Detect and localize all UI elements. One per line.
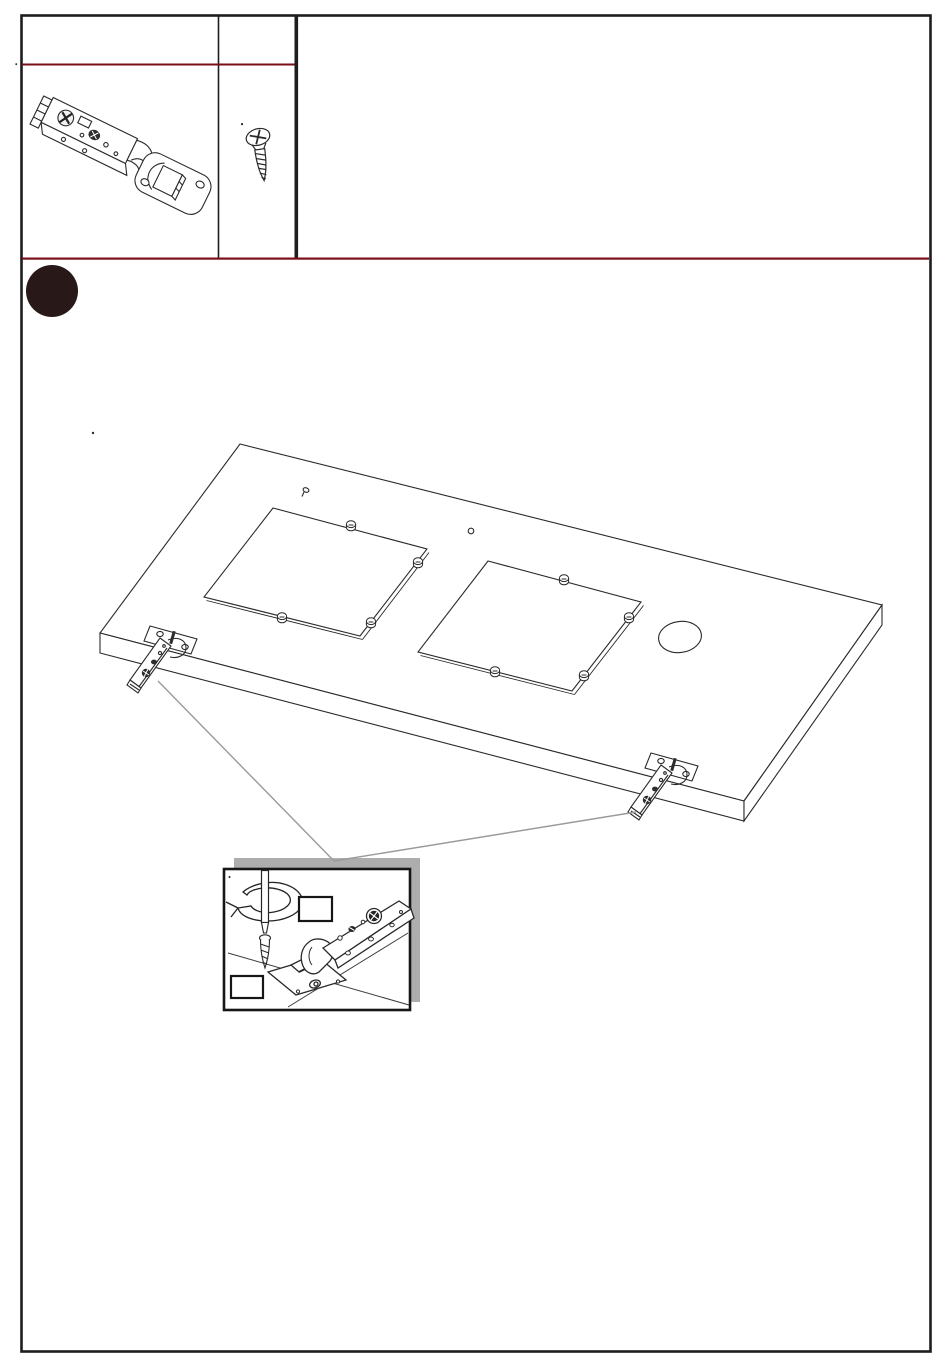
glass-clip — [346, 521, 355, 531]
screw-part-illustration — [241, 119, 277, 182]
hinge-part-illustration — [0, 63, 223, 219]
parts-table-divider-thick — [295, 16, 299, 258]
screwdriver-icon — [262, 871, 269, 934]
glass-clip — [490, 667, 499, 677]
red-rule-top — [22, 64, 295, 66]
instruction-page — [0, 0, 950, 1370]
leader-line-2 — [334, 812, 636, 861]
glass-clip — [559, 575, 568, 585]
label-box-2 — [231, 976, 263, 998]
leader-line-1 — [158, 681, 334, 861]
glass-clip — [277, 613, 286, 623]
instruction-drawing — [0, 0, 950, 1370]
step-marker — [26, 265, 78, 317]
glass-clip — [366, 618, 375, 628]
panel-pilot-hole — [468, 528, 474, 534]
label-box-1 — [299, 897, 332, 921]
glass-clip — [413, 558, 422, 568]
door-panel — [92, 432, 882, 821]
red-rule-bottom — [22, 258, 929, 260]
glass-clip — [579, 671, 588, 681]
glass-clip — [624, 613, 633, 623]
